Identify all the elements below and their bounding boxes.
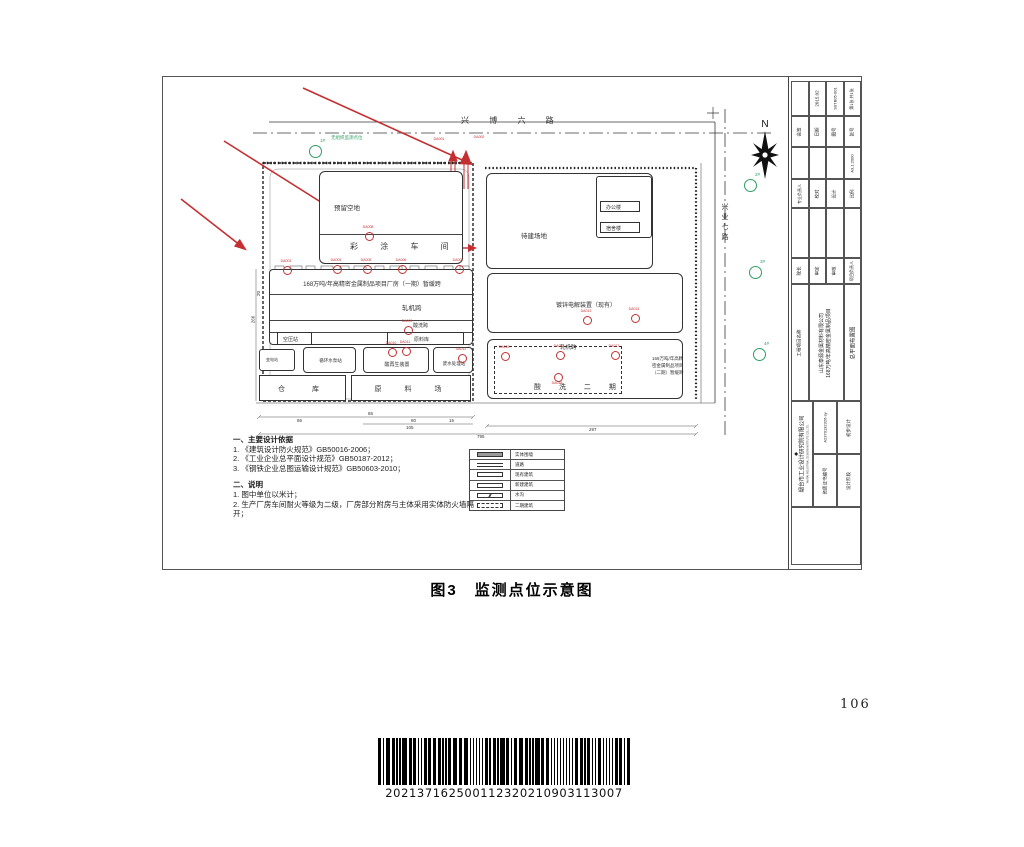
label-reserved-land: 预留空地	[334, 202, 360, 212]
tb-cell: 专业负责人	[791, 179, 809, 208]
barcode-bar	[560, 738, 562, 785]
document-page: N 兴 博 六 路 兴业七路 无组织监测点位 预留空地 彩 涂 车 间 168万…	[0, 0, 1024, 847]
tb-company-en: YANTAI INDUSTRIAL DESIGN INSTITUTE CO.,L…	[805, 415, 811, 492]
barcode-bar	[572, 738, 574, 785]
label-phase2-line1: 168万吨/年高精	[652, 356, 683, 362]
barcode-bar	[424, 738, 427, 785]
label-dormitory: 宿舍楼	[606, 225, 621, 232]
fugitive-monitoring-point	[309, 145, 322, 158]
stack-point-label: DA006	[391, 258, 411, 262]
stack-point-label: DA007	[448, 258, 468, 262]
barcode-bar	[557, 738, 559, 785]
tb-cell: 张号	[844, 116, 862, 147]
legend-label: 新建建筑	[511, 482, 533, 488]
label-coating-workshop: 彩 涂 车 间	[350, 241, 459, 252]
barcode-bar	[428, 738, 431, 785]
legend-row: 道路	[470, 460, 564, 470]
building-pickling-phase2: 轧机跨 酸 洗 二 期 168万吨/年高精 密金属制品项目 （二期）暂缓跨	[487, 339, 683, 399]
barcode-bar	[433, 738, 436, 785]
barcode-bar	[554, 738, 556, 785]
building-warehouse: 仓 库	[259, 375, 346, 401]
barcode-bar	[546, 738, 549, 785]
divider	[320, 234, 462, 235]
tb-cell	[791, 208, 809, 258]
area-to-build: 待建场地 办公楼 宿舍楼	[486, 173, 653, 269]
dimension-label: 86	[297, 418, 302, 423]
dimension-label: 15	[449, 418, 454, 423]
tb-cell: 审核	[826, 258, 844, 284]
barcode-bar	[421, 738, 423, 785]
barcode-bar	[506, 738, 509, 785]
tb-cert-label: 资质证书编号	[813, 454, 837, 507]
tb-cell	[826, 208, 844, 258]
stack-monitoring-point	[611, 351, 620, 360]
stack-point-label: DA011	[395, 340, 415, 344]
building-raw-yard: 原 料 场	[351, 375, 471, 401]
barcode-bar	[399, 738, 401, 785]
stack-point-label: DA009	[397, 319, 417, 323]
legend-row: 水沟	[470, 491, 564, 501]
label-plant1: 168万吨/年高精密金属制品项目厂房（一期）暂缓跨	[270, 279, 474, 288]
building-coating-workshop: 预留空地 彩 涂 车 间	[319, 171, 463, 264]
barcode-bar	[566, 738, 568, 785]
fugitive-monitoring-point	[753, 348, 766, 361]
barcode-bar	[525, 738, 528, 785]
tb-cell: 图号	[826, 116, 844, 147]
label-galvanize: 镀锌电解装置（现有）	[488, 300, 684, 309]
barcode-bar	[587, 738, 590, 785]
barcode-bar	[514, 738, 517, 785]
barcode-bar	[551, 738, 553, 785]
barcode-bar	[612, 738, 614, 785]
stack-monitoring-point	[398, 265, 407, 274]
note-item: 2. 《工业企业总平面设计规范》GB50187-2012；	[233, 454, 483, 464]
label-wastewater-station: 废水处理站	[434, 361, 474, 367]
barcode-bar	[464, 738, 469, 785]
dimension-label: 20	[256, 291, 261, 296]
stack-point-label: DA004	[326, 258, 346, 262]
fugitive-monitoring-point	[744, 179, 757, 192]
tb-cell: 校对	[809, 179, 827, 208]
tb-project-label: 工程项目名称	[791, 284, 809, 401]
tb-cell: 比例	[844, 179, 862, 208]
fugitive-monitoring-point	[749, 266, 762, 279]
barcode-bar	[476, 738, 478, 785]
legend-label: 二期建筑	[511, 503, 533, 509]
barcode-bar	[482, 738, 484, 785]
barcode	[378, 738, 630, 785]
building-air-compressor: 空压站	[277, 332, 312, 345]
barcode-bar	[396, 738, 398, 785]
building-admin-block: 办公楼 宿舍楼	[596, 176, 652, 238]
north-arrow-icon: N	[751, 119, 779, 179]
label-acid-regeneration: 酸再生装置	[364, 361, 430, 368]
barcode-bar	[603, 738, 605, 785]
svg-text:N: N	[761, 119, 768, 130]
label-air-compressor: 空压站	[283, 336, 298, 343]
barcode-bar	[529, 738, 531, 785]
label-pump-station: 循环水泵站	[304, 358, 357, 364]
stack-point-label: DA018	[547, 381, 567, 385]
tb-cell: 日期	[809, 116, 827, 147]
legend-row: 实体围墙	[470, 450, 564, 460]
barcode-bar	[609, 738, 611, 785]
note-item: 1. 图中单位以米计；	[233, 490, 483, 500]
label-substation: 变电站	[266, 357, 278, 363]
stack-point-label: DA008	[358, 225, 378, 229]
barcode-bar	[519, 738, 524, 785]
barcode-bar	[619, 738, 622, 785]
barcode-bar	[413, 738, 416, 785]
stack-point-label: DA012	[451, 347, 471, 351]
barcode-bar	[624, 738, 626, 785]
note-item: 1. 《建筑设计防火规范》GB50016-2006；	[233, 445, 483, 455]
tb-cell: 院长	[791, 258, 809, 284]
road-label-east: 兴业七路	[719, 203, 729, 243]
stack-monitoring-point	[455, 265, 464, 274]
barcode-bar	[541, 738, 544, 785]
barcode-bar	[448, 738, 451, 785]
label-office: 办公楼	[606, 204, 621, 211]
tb-cell	[809, 208, 827, 258]
dimension-label: 85	[368, 411, 373, 416]
page-number: 106	[840, 697, 871, 712]
stack-monitoring-point	[388, 348, 397, 357]
tb-cell: 2015.02	[809, 81, 827, 116]
barcode-bar	[473, 738, 475, 785]
barcode-bar	[598, 738, 601, 785]
barcode-bar	[627, 738, 630, 785]
barcode-bar	[493, 738, 496, 785]
stack-point-label: DA015	[494, 345, 514, 349]
stack-monitoring-point	[556, 351, 565, 360]
tb-cell	[791, 81, 809, 116]
fugitive-point-label: 4#	[764, 341, 769, 346]
fugitive-point-label: 3#	[760, 259, 765, 264]
stack-monitoring-point	[363, 265, 372, 274]
design-notes: 一、主要设计依据 1. 《建筑设计防火规范》GB50016-2006； 2. 《…	[233, 435, 483, 519]
dimension-label: 297	[589, 427, 597, 432]
divider	[270, 294, 472, 295]
company-logo-icon: ◆	[793, 415, 799, 492]
tb-cert-no: A2370132326-sy	[813, 401, 837, 454]
label-raw-yard: 原 料 场	[352, 384, 472, 394]
building-office: 办公楼	[600, 201, 640, 212]
tb-cell: 项目负责人	[844, 258, 862, 284]
barcode-bar	[595, 738, 597, 785]
site-plan-sheet: N 兴 博 六 路 兴业七路 无组织监测点位 预留空地 彩 涂 车 间 168万…	[162, 76, 862, 570]
tb-cell	[791, 147, 809, 179]
legend-label: 现有建筑	[511, 472, 533, 478]
barcode-bar	[438, 738, 441, 785]
legend-row: 新建建筑	[470, 481, 564, 491]
barcode-bar	[445, 738, 447, 785]
barcode-bar	[378, 738, 381, 785]
tb-cell	[826, 147, 844, 179]
tb-cell: 第1张 共1张	[844, 81, 862, 116]
figure-caption: 图3 监测点位示意图	[362, 579, 662, 600]
divider	[270, 320, 472, 321]
tb-cell: S0TB05-001	[826, 81, 844, 116]
legend-label: 道路	[511, 462, 524, 468]
legend-label: 实体围墙	[511, 452, 533, 458]
building-dormitory: 宿舍楼	[600, 222, 640, 233]
tb-company-name: 烟台市工业设计研究院有限公司	[799, 415, 805, 492]
legend-table: 实体围墙 道路 现有建筑 新建建筑 水沟 二期建筑	[469, 449, 565, 511]
barcode-bar	[497, 738, 499, 785]
stack-point-label: DA017	[604, 344, 624, 348]
stack-point-label: DA013	[576, 309, 596, 313]
tb-project-name: 山东泰源金属材料有限公司 168万吨/年高精密金属制品项目	[809, 284, 844, 401]
barcode-bar	[489, 738, 491, 785]
stack-monitoring-point	[333, 265, 342, 274]
tb-blank	[791, 507, 861, 565]
barcode-bar	[386, 738, 391, 785]
stack-point-label: DA005	[356, 258, 376, 262]
label-warehouse: 仓 库	[260, 384, 347, 394]
fugitive-point-label: 1#	[320, 138, 325, 143]
barcode-bar	[459, 738, 462, 785]
barcode-bar	[615, 738, 618, 785]
barcode-bar	[606, 738, 608, 785]
label-raw-store: 原料库	[414, 336, 429, 343]
barcode-bar	[584, 738, 586, 785]
barcode-bar	[500, 738, 505, 785]
barcode-bar	[511, 738, 513, 785]
building-phase1-plant: 168万吨/年高精密金属制品项目厂房（一期）暂缓跨 轧机跨 酸洗跨 空压站 原料…	[269, 269, 473, 345]
stack-point-label: DA003	[276, 259, 296, 263]
barcode-bar	[418, 738, 420, 785]
barcode-bar	[470, 738, 472, 785]
dimension-label: 105	[406, 425, 414, 430]
tb-company: ◆ 烟台市工业设计研究院有限公司 YANTAI INDUSTRIAL DESIG…	[791, 401, 813, 507]
barcode-bar	[442, 738, 444, 785]
dimension-label: 80	[411, 418, 416, 423]
building-pump-station: 循环水泵站	[303, 347, 356, 373]
tb-cell	[809, 147, 827, 179]
building-substation: 变电站	[259, 349, 295, 371]
stack-point-label: DA016	[549, 344, 569, 348]
barcode-bar	[569, 738, 571, 785]
fugitive-point-label: 2#	[755, 172, 760, 177]
stack-monitoring-point	[283, 266, 292, 275]
stack-point-label: DA002	[469, 135, 489, 139]
label-mill-span: 轧机跨	[402, 302, 422, 312]
barcode-bar	[402, 738, 407, 785]
stack-monitoring-point	[402, 347, 411, 356]
barcode-bar	[479, 738, 481, 785]
barcode-bar	[409, 738, 412, 785]
barcode-bar	[383, 738, 385, 785]
barcode-bar	[580, 738, 583, 785]
barcode-bar	[535, 738, 540, 785]
tb-cell: A3,1:2000	[844, 147, 862, 179]
tb-cell: 设计	[826, 179, 844, 208]
road-label-north: 兴 博 六 路	[461, 115, 563, 126]
title-block: 2015.02 S0TB05-001 第1张 共1张 会签 日期 图号 张号 A…	[788, 77, 861, 569]
note-item: 2. 生产厂房车间耐火等级为二级，厂房部分附房与主体采用实体防火墙隔开；	[233, 500, 483, 519]
label-phase2-line3: （二期）暂缓跨	[652, 370, 684, 376]
stack-monitoring-point	[501, 352, 510, 361]
barcode-bar	[592, 738, 594, 785]
barcode-bar	[453, 738, 458, 785]
tb-cell	[844, 208, 862, 258]
tb-stage-value: 初步设计	[837, 401, 861, 454]
label-to-build: 待建场地	[521, 230, 547, 240]
barcode-bar	[563, 738, 565, 785]
label-pickling-span: 酸洗跨	[413, 322, 428, 329]
notes-heading-2: 二、说明	[233, 480, 483, 490]
label-phase2-line2: 密金属制品项目	[652, 363, 684, 369]
barcode-bar	[532, 738, 534, 785]
stack-monitoring-point	[583, 316, 592, 325]
legend-row: 二期建筑	[470, 501, 564, 510]
tb-cell: 会签	[791, 116, 809, 147]
dimension-label: 266	[250, 316, 255, 324]
tb-cell: 审定	[809, 258, 827, 284]
tb-stage-label: 设计阶段	[837, 454, 861, 507]
stack-point-label: DA001	[429, 137, 449, 141]
stack-monitoring-point	[404, 326, 413, 335]
stack-monitoring-point	[365, 232, 374, 241]
tb-project-name-2: 168万吨/年高精密金属制品项目	[826, 308, 833, 378]
notes-heading-1: 一、主要设计依据	[233, 435, 483, 445]
unorganized-note: 无组织监测点位	[331, 135, 363, 141]
note-item: 3. 《钢铁企业总图运输设计规范》GB50603-2010；	[233, 464, 483, 474]
stack-point-label: DA014	[624, 307, 644, 311]
legend-row: 现有建筑	[470, 470, 564, 480]
barcode-bar	[485, 738, 488, 785]
barcode-bar	[575, 738, 578, 785]
stack-monitoring-point	[631, 314, 640, 323]
legend-label: 水沟	[511, 492, 524, 498]
stack-monitoring-point	[458, 354, 467, 363]
barcode-bar	[392, 738, 395, 785]
barcode-digits: 202137162500112320210903113007	[370, 786, 638, 800]
tb-drawing-title: 总平面布置图	[844, 284, 862, 401]
